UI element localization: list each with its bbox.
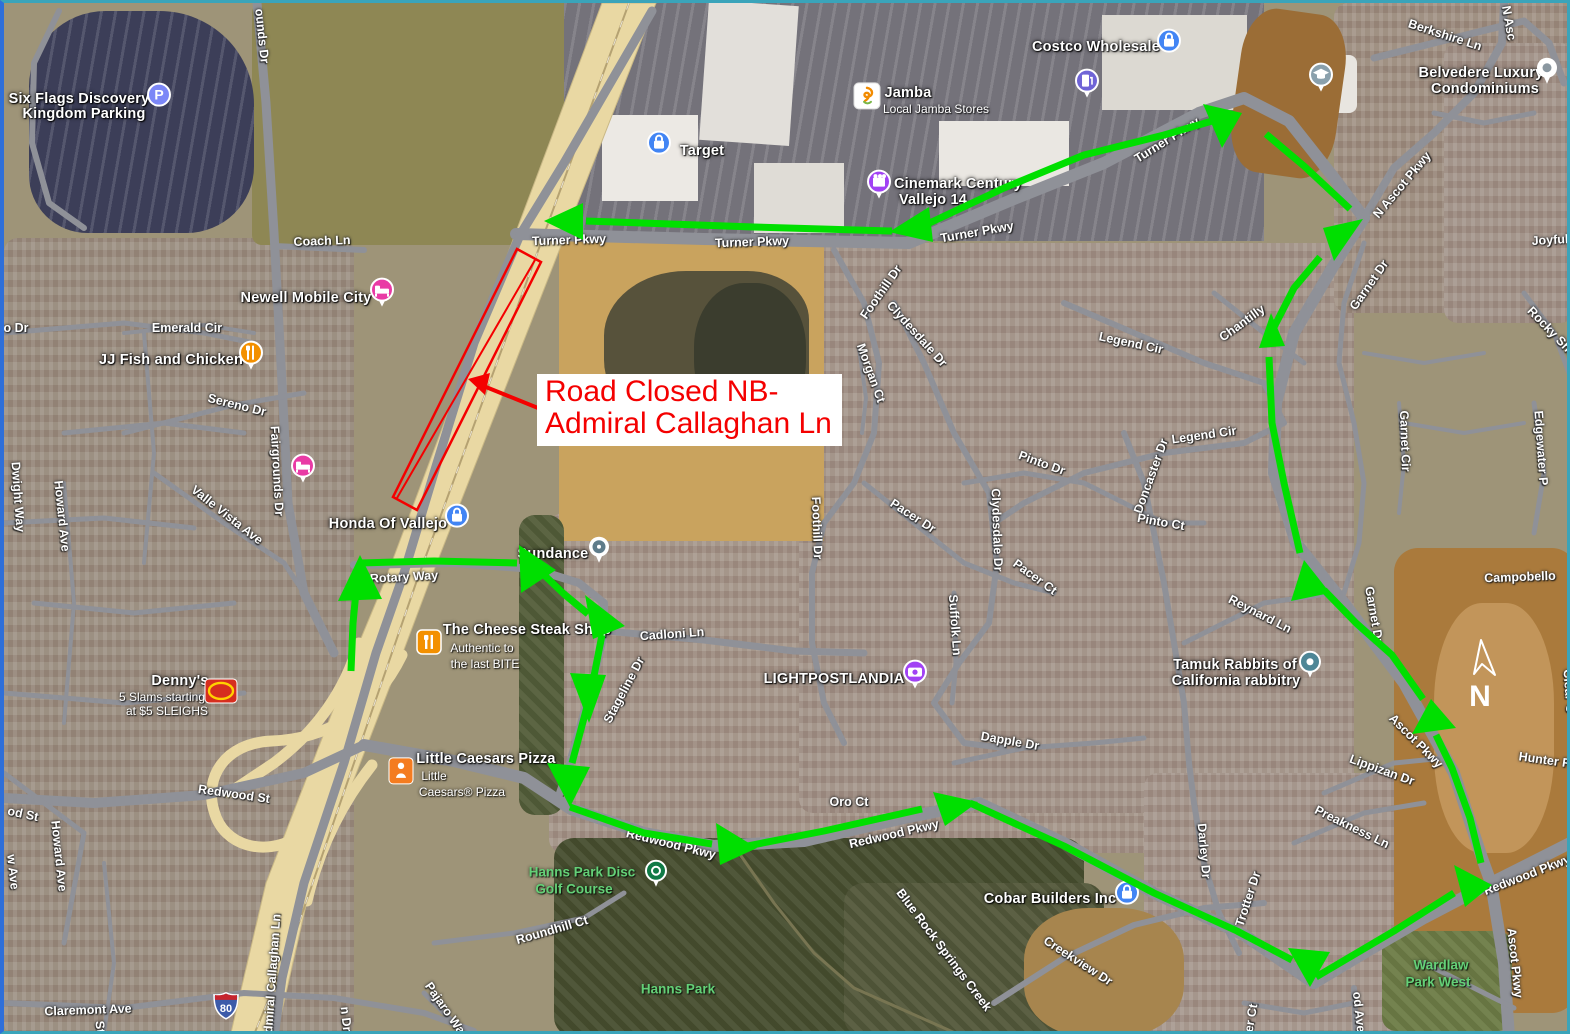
satellite-map-annotated: Coach Lnounds DrFairgrounds DrEmerald Ci… xyxy=(0,0,1570,1034)
svg-text:N: N xyxy=(1469,680,1491,713)
road-closed-line2: Admiral Callaghan Ln xyxy=(545,408,832,440)
road-closed-callout: Road Closed NB- Admiral Callaghan Ln xyxy=(537,374,842,446)
detour-annotation-layer: N xyxy=(4,3,1570,1034)
road-closed-line1: Road Closed NB- xyxy=(545,376,832,408)
